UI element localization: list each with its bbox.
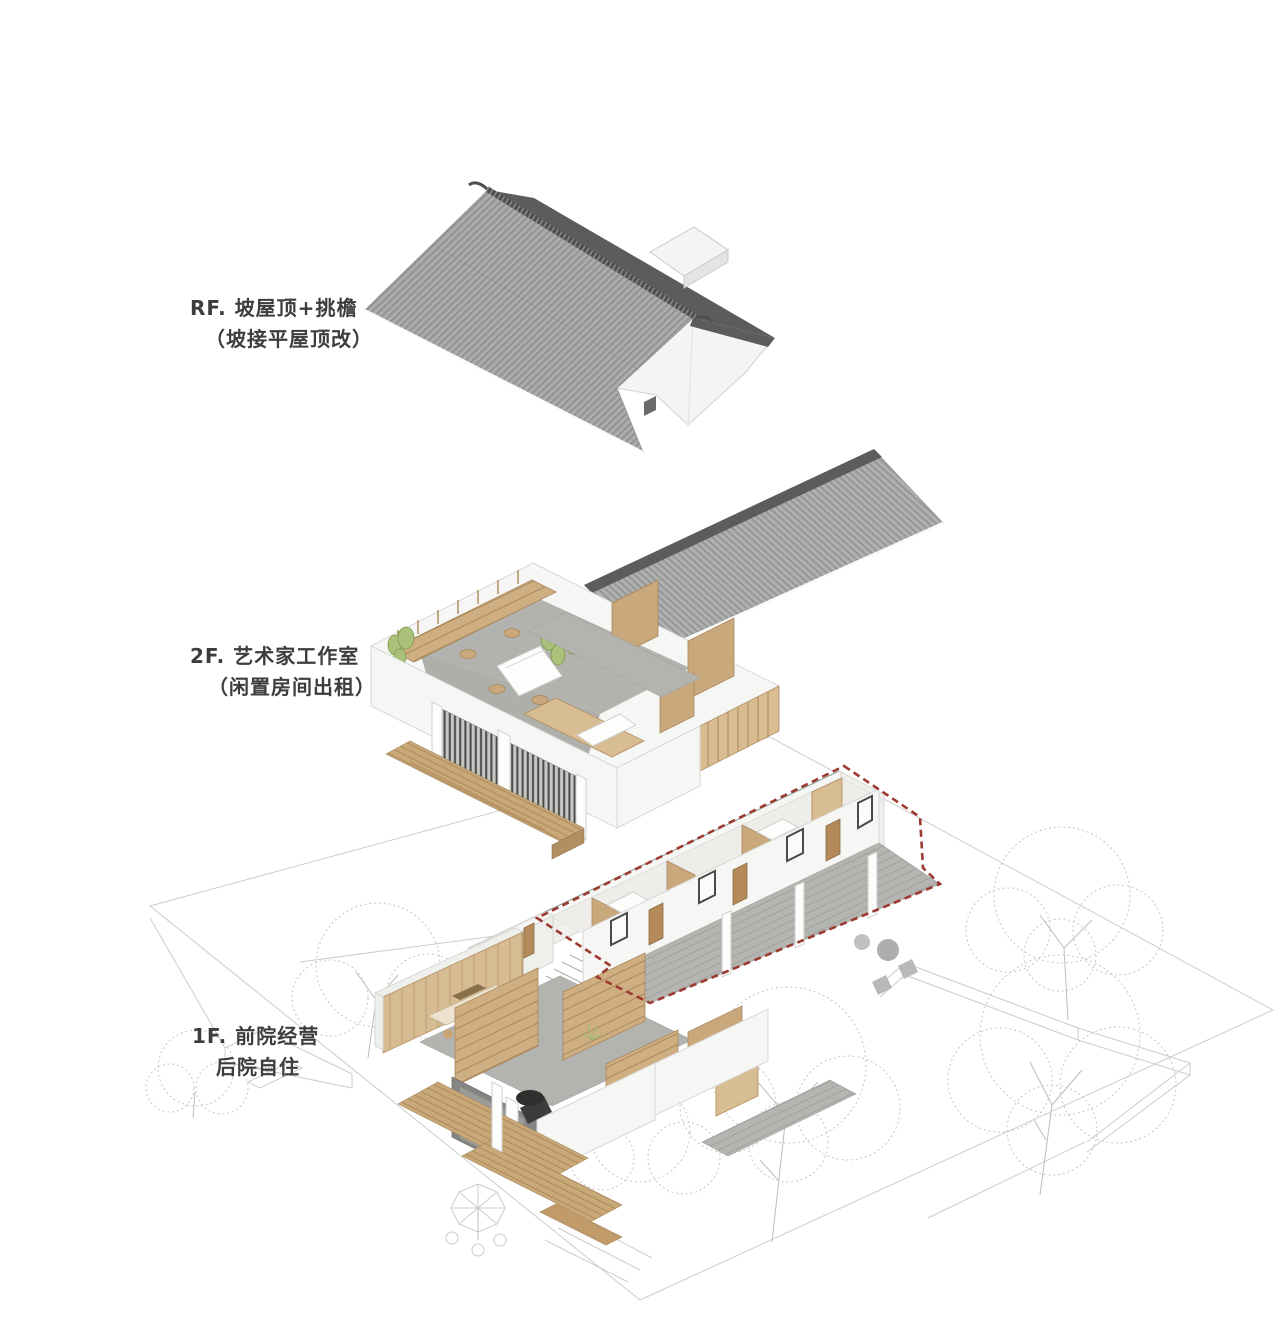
corridor-post	[795, 882, 804, 948]
label-2f-line1: 2F. 艺术家工作室	[190, 641, 376, 672]
label-2f-line2: （闲置房间出租）	[190, 672, 376, 703]
site-boundary	[150, 737, 1273, 1300]
stool	[443, 1029, 453, 1039]
exterior-wall	[375, 993, 383, 1050]
axonometric-diagram: RF. 坡屋顶+挑檐 （坡接平屋顶改） 2F. 艺术家工作室 （闲置房间出租） …	[0, 0, 1280, 1335]
site-plan-sketch	[146, 737, 1273, 1300]
corridor-post	[868, 852, 877, 918]
label-1f-line2: 后院自住	[192, 1052, 319, 1083]
attic-window	[644, 396, 656, 416]
courtyard-wall-right	[880, 963, 1190, 1142]
door	[524, 923, 534, 958]
label-1f-line1: 1F. 前院经营	[192, 1021, 319, 1052]
label-rf-line1: RF. 坡屋顶+挑檐	[190, 293, 373, 324]
corridor-post	[722, 911, 731, 977]
roof-rf	[365, 183, 775, 452]
door	[649, 903, 663, 945]
label-1f: 1F. 前院经营 后院自住	[192, 1021, 319, 1083]
bonsai-plant	[516, 1090, 544, 1106]
roof-front-slope	[365, 190, 693, 452]
eave-finial	[469, 183, 487, 189]
door	[733, 863, 747, 905]
deck-pillar	[492, 1082, 502, 1152]
parasol-table-sketch	[446, 1184, 506, 1256]
garden-pots	[854, 934, 918, 995]
shop-block-1f	[375, 928, 856, 1245]
label-2f: 2F. 艺术家工作室 （闲置房间出租）	[190, 641, 376, 703]
label-rf-line2: （坡接平屋顶改）	[190, 324, 373, 355]
floor-1f	[375, 771, 940, 1245]
label-rf: RF. 坡屋顶+挑檐 （坡接平屋顶改）	[190, 293, 373, 355]
door	[826, 819, 840, 861]
tree-sketch	[966, 827, 1163, 1020]
